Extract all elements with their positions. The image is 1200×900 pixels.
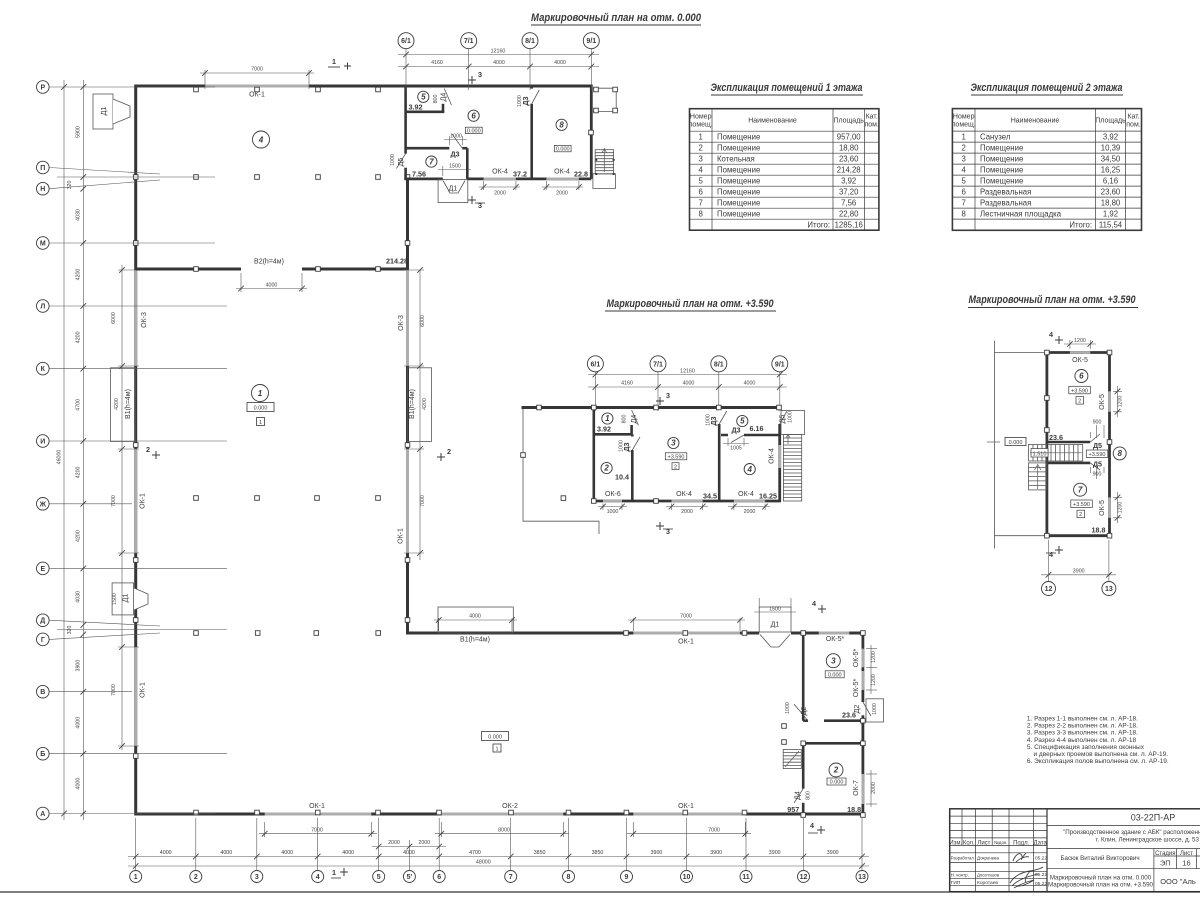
svg-text:6: 6 xyxy=(437,874,441,881)
svg-text:5: 5 xyxy=(740,417,745,426)
svg-text:1: 1 xyxy=(134,874,138,881)
svg-text:4000: 4000 xyxy=(683,381,695,387)
svg-text:6: 6 xyxy=(1079,372,1084,381)
svg-text:1285,16: 1285,16 xyxy=(835,221,863,230)
svg-text:Помещение: Помещение xyxy=(717,166,760,175)
svg-text:4000: 4000 xyxy=(744,381,756,387)
svg-text:1500: 1500 xyxy=(449,164,461,170)
svg-text:Помещение: Помещение xyxy=(717,133,760,142)
svg-text:1. Разрез 1-1 выполнен см. л.: 1. Разрез 1-1 выполнен см. л. АР-18. xyxy=(1027,716,1138,723)
svg-text:ОК-4: ОК-4 xyxy=(769,448,776,464)
svg-text:5: 5 xyxy=(962,177,967,186)
svg-text:ОК-1: ОК-1 xyxy=(249,92,265,99)
svg-text:Котельная: Котельная xyxy=(717,155,755,164)
svg-text:Д: Д xyxy=(40,618,45,625)
svg-text:1200: 1200 xyxy=(1074,338,1086,344)
svg-text:1: 1 xyxy=(605,414,610,423)
svg-text:4700: 4700 xyxy=(76,399,82,411)
svg-text:0.000: 0.000 xyxy=(556,147,570,153)
svg-text:Басюк Виталий Викторович: Басюк Виталий Викторович xyxy=(1060,855,1139,862)
svg-text:800: 800 xyxy=(622,415,628,424)
svg-text:7000: 7000 xyxy=(708,828,720,834)
svg-text:В2(h=4м): В2(h=4м) xyxy=(254,259,284,266)
svg-text:В1(h=4м): В1(h=4м) xyxy=(125,389,132,419)
svg-text:Раздевальная: Раздевальная xyxy=(980,199,1031,208)
svg-text:ОК-1: ОК-1 xyxy=(140,682,147,698)
svg-text:ОК-5: ОК-5 xyxy=(1072,357,1088,364)
svg-text:3900: 3900 xyxy=(769,850,781,856)
svg-text:2: 2 xyxy=(699,144,703,153)
svg-text:6000: 6000 xyxy=(420,315,426,327)
svg-text:Дата: Дата xyxy=(1034,840,1048,846)
svg-text:2000: 2000 xyxy=(744,509,756,515)
svg-text:Д1: Д1 xyxy=(101,107,108,116)
svg-text:1200: 1200 xyxy=(1118,502,1124,514)
svg-text:Помещение: Помещение xyxy=(980,155,1023,164)
svg-text:1000: 1000 xyxy=(517,95,523,107)
svg-text:1: 1 xyxy=(699,133,703,142)
svg-text:Маркировочный план на отм. +3.: Маркировочный план на отм. +3.590 xyxy=(607,298,775,310)
svg-text:и дверных проемов выполнена см: и дверных проемов выполнена см. л. АР-19… xyxy=(1034,751,1169,758)
svg-text:ОК-3: ОК-3 xyxy=(398,315,405,331)
svg-text:2000: 2000 xyxy=(681,509,693,515)
svg-text:3900: 3900 xyxy=(651,850,663,856)
svg-text:1000: 1000 xyxy=(785,702,791,714)
svg-text:18.8: 18.8 xyxy=(1092,526,1106,535)
svg-text:7000: 7000 xyxy=(311,828,323,834)
svg-text:0.000: 0.000 xyxy=(828,672,842,678)
svg-text:Лестничная площадка: Лестничная площадка xyxy=(980,210,1062,219)
svg-text:2000: 2000 xyxy=(494,191,506,197)
svg-text:ОК-4: ОК-4 xyxy=(676,491,692,498)
svg-text:+3.590: +3.590 xyxy=(1073,502,1090,508)
svg-text:6,16: 6,16 xyxy=(1103,177,1118,186)
svg-text:4200: 4200 xyxy=(76,269,82,281)
svg-text:4000: 4000 xyxy=(403,850,415,856)
svg-text:4: 4 xyxy=(699,166,704,175)
svg-text:18.8: 18.8 xyxy=(847,805,861,814)
svg-text:7,56: 7,56 xyxy=(841,199,856,208)
svg-text:37,20: 37,20 xyxy=(839,188,859,197)
svg-text:Помещение: Помещение xyxy=(980,144,1023,153)
svg-text:1: 1 xyxy=(259,420,262,426)
svg-text:4: 4 xyxy=(316,874,320,881)
svg-text:Наименование: Наименование xyxy=(748,118,797,125)
svg-text:Д2: Д2 xyxy=(801,707,808,716)
svg-text:1: 1 xyxy=(962,133,966,142)
svg-text:ОК-4: ОК-4 xyxy=(738,491,754,498)
svg-text:6: 6 xyxy=(471,111,476,120)
svg-text:4: 4 xyxy=(258,136,264,145)
svg-text:ОК-5: ОК-5 xyxy=(1099,500,1106,516)
svg-text:Д3: Д3 xyxy=(731,426,740,435)
svg-text:6.16: 6.16 xyxy=(750,424,764,433)
svg-text:2000: 2000 xyxy=(871,782,877,794)
svg-text:8/1: 8/1 xyxy=(714,361,724,368)
svg-text:7: 7 xyxy=(962,199,966,208)
svg-text:4000: 4000 xyxy=(281,850,293,856)
svg-text:3,92: 3,92 xyxy=(841,177,856,186)
svg-text:1.510: 1.510 xyxy=(1033,451,1047,457)
svg-text:1000: 1000 xyxy=(788,411,794,423)
svg-text:8: 8 xyxy=(567,874,571,881)
svg-text:4: 4 xyxy=(962,166,967,175)
svg-text:Д4: Д4 xyxy=(631,415,638,424)
svg-text:+3.590: +3.590 xyxy=(1071,388,1088,394)
svg-text:Коротаев: Коротаев xyxy=(977,880,998,886)
svg-text:05.22: 05.22 xyxy=(1035,856,1047,862)
svg-text:4: 4 xyxy=(1049,330,1053,339)
svg-text:4030: 4030 xyxy=(76,591,82,603)
svg-text:3: 3 xyxy=(671,439,676,448)
svg-text:03-22П-АР: 03-22П-АР xyxy=(1131,813,1176,823)
svg-text:4: 4 xyxy=(810,821,814,830)
svg-text:34,50: 34,50 xyxy=(1101,155,1121,164)
svg-text:0.000: 0.000 xyxy=(488,735,502,741)
svg-text:8: 8 xyxy=(559,121,564,130)
svg-text:48000: 48000 xyxy=(476,860,491,866)
svg-text:Лист: Лист xyxy=(1180,851,1193,857)
svg-text:9/1: 9/1 xyxy=(775,361,785,368)
svg-text:ОК-1: ОК-1 xyxy=(398,528,405,544)
svg-text:2000: 2000 xyxy=(388,840,400,846)
svg-text:Д4: Д4 xyxy=(795,791,802,800)
svg-text:2: 2 xyxy=(674,464,677,470)
svg-text:9/1: 9/1 xyxy=(586,38,596,45)
svg-text:4700: 4700 xyxy=(469,850,481,856)
svg-text:Маркировочный план на отм. 0.0: Маркировочный план на отм. 0.000 xyxy=(1050,875,1152,882)
svg-text:16: 16 xyxy=(1182,859,1190,868)
svg-text:Д2: Д2 xyxy=(854,705,861,714)
svg-text:18,80: 18,80 xyxy=(1101,199,1121,208)
svg-text:3: 3 xyxy=(478,201,482,210)
svg-text:Д1: Д1 xyxy=(771,622,780,629)
svg-text:10: 10 xyxy=(683,874,691,881)
svg-text:Маркировочный план на отм. 0.0: Маркировочный план на отм. 0.000 xyxy=(531,12,702,24)
svg-text:7.56: 7.56 xyxy=(412,170,426,179)
svg-text:4160: 4160 xyxy=(621,381,633,387)
svg-text:4: 4 xyxy=(746,465,752,474)
svg-text:+3.590: +3.590 xyxy=(668,454,685,460)
svg-text:Д5: Д5 xyxy=(1093,460,1102,469)
svg-text:10,39: 10,39 xyxy=(1101,144,1121,153)
svg-text:3: 3 xyxy=(478,70,482,79)
svg-text:1000: 1000 xyxy=(390,154,396,166)
svg-text:1500: 1500 xyxy=(112,593,118,605)
svg-text:0.000: 0.000 xyxy=(1009,440,1023,446)
svg-text:900: 900 xyxy=(1093,420,1102,426)
svg-text:3850: 3850 xyxy=(592,850,604,856)
svg-text:Д5: Д5 xyxy=(398,158,405,167)
svg-text:ЭП: ЭП xyxy=(1160,859,1171,868)
svg-text:3: 3 xyxy=(666,527,670,536)
svg-text:12160: 12160 xyxy=(680,368,695,374)
svg-text:ОК-5*: ОК-5* xyxy=(826,636,845,643)
svg-text:3.92: 3.92 xyxy=(597,425,611,434)
svg-text:1000: 1000 xyxy=(607,509,619,515)
svg-text:0.000: 0.000 xyxy=(467,128,481,134)
svg-text:Л: Л xyxy=(40,304,45,311)
svg-text:Помещение: Помещение xyxy=(717,210,760,219)
svg-text:7: 7 xyxy=(429,157,434,166)
svg-text:4000: 4000 xyxy=(493,60,505,66)
svg-text:1000: 1000 xyxy=(872,703,878,715)
svg-text:7000: 7000 xyxy=(111,684,117,696)
svg-text:ООО "Аль: ООО "Аль xyxy=(1160,877,1196,886)
svg-text:пом.: пом. xyxy=(864,122,878,129)
svg-text:4000: 4000 xyxy=(76,778,82,790)
svg-text:214,28: 214,28 xyxy=(837,166,861,175)
svg-text:ОК-5: ОК-5 xyxy=(1099,394,1106,410)
svg-text:800: 800 xyxy=(806,791,812,800)
svg-text:4: 4 xyxy=(812,599,816,608)
svg-text:помещ.: помещ. xyxy=(689,122,713,129)
svg-text:2: 2 xyxy=(833,766,839,775)
svg-text:6: 6 xyxy=(699,188,703,197)
svg-text:7: 7 xyxy=(1078,485,1083,494)
svg-text:1,92: 1,92 xyxy=(1103,210,1118,219)
svg-text:16,25: 16,25 xyxy=(1101,166,1121,175)
svg-text:4: 4 xyxy=(1049,550,1053,559)
svg-text:46000: 46000 xyxy=(57,450,63,465)
svg-text:2: 2 xyxy=(194,874,198,881)
svg-text:8/1: 8/1 xyxy=(525,38,535,45)
svg-text:2000: 2000 xyxy=(418,840,430,846)
svg-text:Раздевальная: Раздевальная xyxy=(980,188,1031,197)
svg-text:5. Спецификация заполнения око: 5. Спецификация заполнения оконных xyxy=(1027,744,1145,751)
svg-text:6/1: 6/1 xyxy=(401,38,411,45)
svg-text:4000: 4000 xyxy=(76,717,82,729)
svg-text:пом.: пом. xyxy=(1126,122,1140,129)
svg-text:22,80: 22,80 xyxy=(839,210,859,219)
svg-text:3. Разрез 3-3 выполнен см. л.: 3. Разрез 3-3 выполнен см. л. АР-18. xyxy=(1027,730,1138,737)
svg-text:И: И xyxy=(40,439,45,446)
svg-text:957: 957 xyxy=(787,805,799,814)
svg-text:Кол.: Кол. xyxy=(963,840,975,846)
svg-text:К: К xyxy=(41,366,46,373)
svg-text:Маркировочный план на отм. +3.: Маркировочный план на отм. +3.590 xyxy=(1048,882,1154,889)
svg-text:37.2: 37.2 xyxy=(513,170,527,179)
svg-text:6. Экспликация полов выполнена: 6. Экспликация полов выполнена см. л. АР… xyxy=(1027,758,1169,765)
svg-text:5: 5 xyxy=(421,93,426,102)
svg-text:7000: 7000 xyxy=(680,614,692,620)
svg-text:Б: Б xyxy=(40,751,45,758)
svg-text:А: А xyxy=(40,811,45,818)
svg-text:3: 3 xyxy=(962,155,966,164)
svg-text:М: М xyxy=(40,241,46,248)
svg-text:05.22: 05.22 xyxy=(1035,872,1047,878)
svg-text:+3.590: +3.590 xyxy=(1089,452,1106,458)
svg-text:ОК-3: ОК-3 xyxy=(141,312,148,328)
svg-text:4. Разрез 4-4 выполнен см. л.: 4. Разрез 4-4 выполнен см. л. АР-18 xyxy=(1027,737,1137,744)
svg-text:34.5: 34.5 xyxy=(703,492,717,501)
svg-text:3850: 3850 xyxy=(534,850,546,856)
svg-text:7: 7 xyxy=(509,874,513,881)
svg-text:Итого:: Итого: xyxy=(1069,221,1092,230)
svg-text:3: 3 xyxy=(699,155,703,164)
svg-text:8: 8 xyxy=(962,210,966,219)
svg-text:23.6: 23.6 xyxy=(1049,433,1063,442)
svg-text:Досеглазов: Досеглазов xyxy=(977,873,999,879)
svg-text:В1(h=4м): В1(h=4м) xyxy=(460,637,490,644)
svg-text:320: 320 xyxy=(67,181,73,190)
svg-text:ОК-2: ОК-2 xyxy=(502,803,518,810)
svg-text:Помещение: Помещение xyxy=(980,166,1023,175)
svg-text:Санузел: Санузел xyxy=(980,133,1011,142)
svg-text:6000: 6000 xyxy=(111,312,117,324)
svg-text:1: 1 xyxy=(332,57,336,66)
svg-text:Е: Е xyxy=(40,566,45,573)
svg-text:Маркировочный план на отм. +3.: Маркировочный план на отм. +3.590 xyxy=(969,294,1137,306)
svg-text:0.000: 0.000 xyxy=(830,780,844,786)
svg-text:4200: 4200 xyxy=(114,398,120,410)
svg-text:ОК-6: ОК-6 xyxy=(605,491,621,498)
svg-text:Н: Н xyxy=(40,186,45,193)
svg-text:3,92: 3,92 xyxy=(1103,133,1118,142)
svg-text:13: 13 xyxy=(858,874,866,881)
svg-text:Изм.: Изм. xyxy=(949,840,962,846)
svg-text:Д5: Д5 xyxy=(1093,441,1102,450)
svg-text:4000: 4000 xyxy=(469,614,481,620)
svg-text:2: 2 xyxy=(603,464,609,473)
svg-text:3: 3 xyxy=(666,391,670,400)
svg-text:ОК-1: ОК-1 xyxy=(678,639,694,646)
svg-text:3900: 3900 xyxy=(76,660,82,672)
svg-text:Д1: Д1 xyxy=(449,186,458,193)
svg-text:П: П xyxy=(40,165,45,172)
svg-text:Докрачева: Докрачева xyxy=(977,856,999,862)
svg-text:1200: 1200 xyxy=(1118,396,1124,408)
svg-text:ОК-1: ОК-1 xyxy=(309,803,325,810)
svg-text:8000: 8000 xyxy=(498,828,510,834)
svg-text:2: 2 xyxy=(146,445,150,454)
svg-text:7: 7 xyxy=(699,199,703,208)
svg-text:5900: 5900 xyxy=(76,126,82,138)
svg-text:ОК-5*: ОК-5* xyxy=(853,678,860,697)
svg-text:4030: 4030 xyxy=(76,209,82,221)
svg-text:Итого:: Итого: xyxy=(807,221,830,230)
svg-text:8: 8 xyxy=(1117,449,1122,458)
svg-text:Д5: Д5 xyxy=(780,415,787,424)
svg-text:4200: 4200 xyxy=(422,398,428,410)
svg-text:2000: 2000 xyxy=(556,191,568,197)
svg-text:Площадь: Площадь xyxy=(1095,118,1126,125)
svg-text:Ж: Ж xyxy=(39,501,47,508)
svg-text:16.25: 16.25 xyxy=(759,492,777,501)
svg-text:4000: 4000 xyxy=(160,850,172,856)
svg-text:1005: 1005 xyxy=(730,446,742,452)
svg-text:Помещение: Помещение xyxy=(717,177,760,186)
svg-text:Г: Г xyxy=(41,637,45,644)
svg-text:В: В xyxy=(40,689,45,696)
svg-text:3900: 3900 xyxy=(710,850,722,856)
svg-text:Помещение: Помещение xyxy=(717,199,760,208)
svg-text:1: 1 xyxy=(495,747,498,753)
svg-text:12160: 12160 xyxy=(491,49,506,55)
svg-text:8: 8 xyxy=(699,210,703,219)
svg-text:10.4: 10.4 xyxy=(615,473,629,482)
svg-text:Н. контр.: Н. контр. xyxy=(951,873,969,879)
svg-text:Д1: Д1 xyxy=(123,594,130,603)
svg-text:3.92: 3.92 xyxy=(409,103,423,112)
svg-text:2: 2 xyxy=(962,144,966,153)
svg-text:г. Клин, Ленинградское шоссе,: г. Клин, Ленинградское шоссе, д. 53 xyxy=(1096,837,1199,844)
svg-text:Д4: Д4 xyxy=(441,93,448,102)
svg-text:ОК-4: ОК-4 xyxy=(554,169,570,176)
svg-text:1000: 1000 xyxy=(450,134,462,140)
svg-text:11: 11 xyxy=(742,874,750,881)
svg-text:1: 1 xyxy=(258,389,263,398)
svg-text:Разработал: Разработал xyxy=(951,856,974,862)
svg-text:5: 5 xyxy=(699,177,704,186)
svg-text:320: 320 xyxy=(67,626,73,635)
svg-text:115,54: 115,54 xyxy=(1099,221,1123,230)
svg-text:1000: 1000 xyxy=(619,440,625,452)
svg-text:12: 12 xyxy=(800,874,808,881)
svg-text:2. Разрез 2-2 выполнен см. л.: 2. Разрез 2-2 выполнен см. л. АР-18. xyxy=(1027,723,1138,730)
svg-text:12: 12 xyxy=(1045,586,1053,593)
svg-text:1200: 1200 xyxy=(871,651,877,663)
svg-text:1000: 1000 xyxy=(706,414,712,426)
svg-text:1500: 1500 xyxy=(769,607,781,613)
svg-text:7/1: 7/1 xyxy=(653,361,663,368)
svg-text:7000: 7000 xyxy=(111,495,117,507)
svg-text:ОК-1: ОК-1 xyxy=(678,803,694,810)
svg-text:Помещение: Помещение xyxy=(980,177,1023,186)
svg-text:4160: 4160 xyxy=(431,60,443,66)
svg-text:22.8: 22.8 xyxy=(574,170,588,179)
svg-text:Подл.: Подл. xyxy=(1013,840,1030,846)
svg-text:4200: 4200 xyxy=(76,331,82,343)
svg-text:Стадия: Стадия xyxy=(1155,851,1175,857)
svg-text:4000: 4000 xyxy=(266,282,278,288)
svg-text:3900: 3900 xyxy=(1073,569,1085,575)
svg-text:Р: Р xyxy=(40,85,45,92)
svg-text:Наименование: Наименование xyxy=(1011,118,1060,125)
svg-text:Экспликация помещений 1 этажа: Экспликация помещений 1 этажа xyxy=(711,82,863,94)
svg-text:7000: 7000 xyxy=(420,495,426,507)
svg-text:Номер: Номер xyxy=(953,114,975,121)
svg-text:Экспликация помещений 2 этажа: Экспликация помещений 2 этажа xyxy=(971,82,1123,94)
svg-text:7/1: 7/1 xyxy=(464,38,474,45)
svg-text:23,60: 23,60 xyxy=(1101,188,1121,197)
svg-text:ОК-1: ОК-1 xyxy=(140,493,147,509)
svg-text:2: 2 xyxy=(1078,399,1081,405)
svg-text:0.000: 0.000 xyxy=(254,406,268,412)
svg-text:1200: 1200 xyxy=(871,674,877,686)
svg-text:ГИП: ГИП xyxy=(951,880,961,886)
svg-text:Помещение: Помещение xyxy=(717,144,760,153)
svg-text:ОК-4: ОК-4 xyxy=(492,169,508,176)
svg-text:2: 2 xyxy=(1079,512,1082,518)
svg-text:23,60: 23,60 xyxy=(839,155,859,164)
svg-text:"Производственное здание с АБК: "Производственное здание с АБК" располож… xyxy=(1063,829,1200,836)
svg-text:800: 800 xyxy=(433,95,439,104)
svg-text:18,80: 18,80 xyxy=(839,144,859,153)
svg-text:Кат.: Кат. xyxy=(1127,114,1139,121)
svg-text:3: 3 xyxy=(831,656,836,665)
svg-text:помещ.: помещ. xyxy=(952,122,976,129)
svg-text:4000: 4000 xyxy=(554,60,566,66)
svg-text:5: 5 xyxy=(377,874,381,881)
svg-text:5': 5' xyxy=(407,874,413,881)
svg-text:1: 1 xyxy=(332,868,336,877)
svg-text:2: 2 xyxy=(447,447,451,456)
svg-text:В1(h=4м): В1(h=4м) xyxy=(409,389,416,419)
svg-text:9: 9 xyxy=(625,874,629,881)
svg-text:Д3: Д3 xyxy=(450,150,459,159)
svg-text:13: 13 xyxy=(1105,586,1113,593)
